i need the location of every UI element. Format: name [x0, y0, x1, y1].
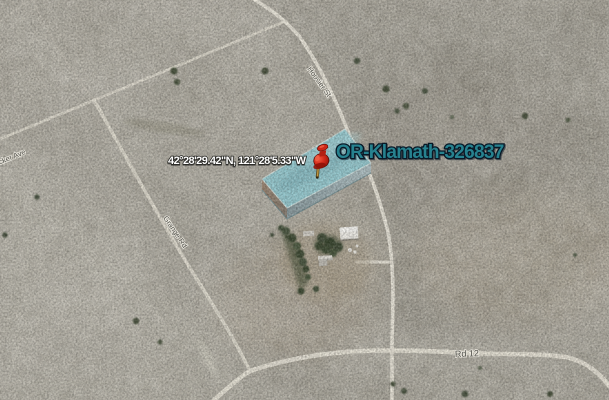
svg-text:Rd 12: Rd 12: [455, 348, 479, 359]
svg-text:42°28'29.42"N, 121°28'5.33"W: 42°28'29.42"N, 121°28'5.33"W: [168, 155, 307, 167]
svg-text:OR-Klamath-326837: OR-Klamath-326837: [336, 142, 504, 163]
